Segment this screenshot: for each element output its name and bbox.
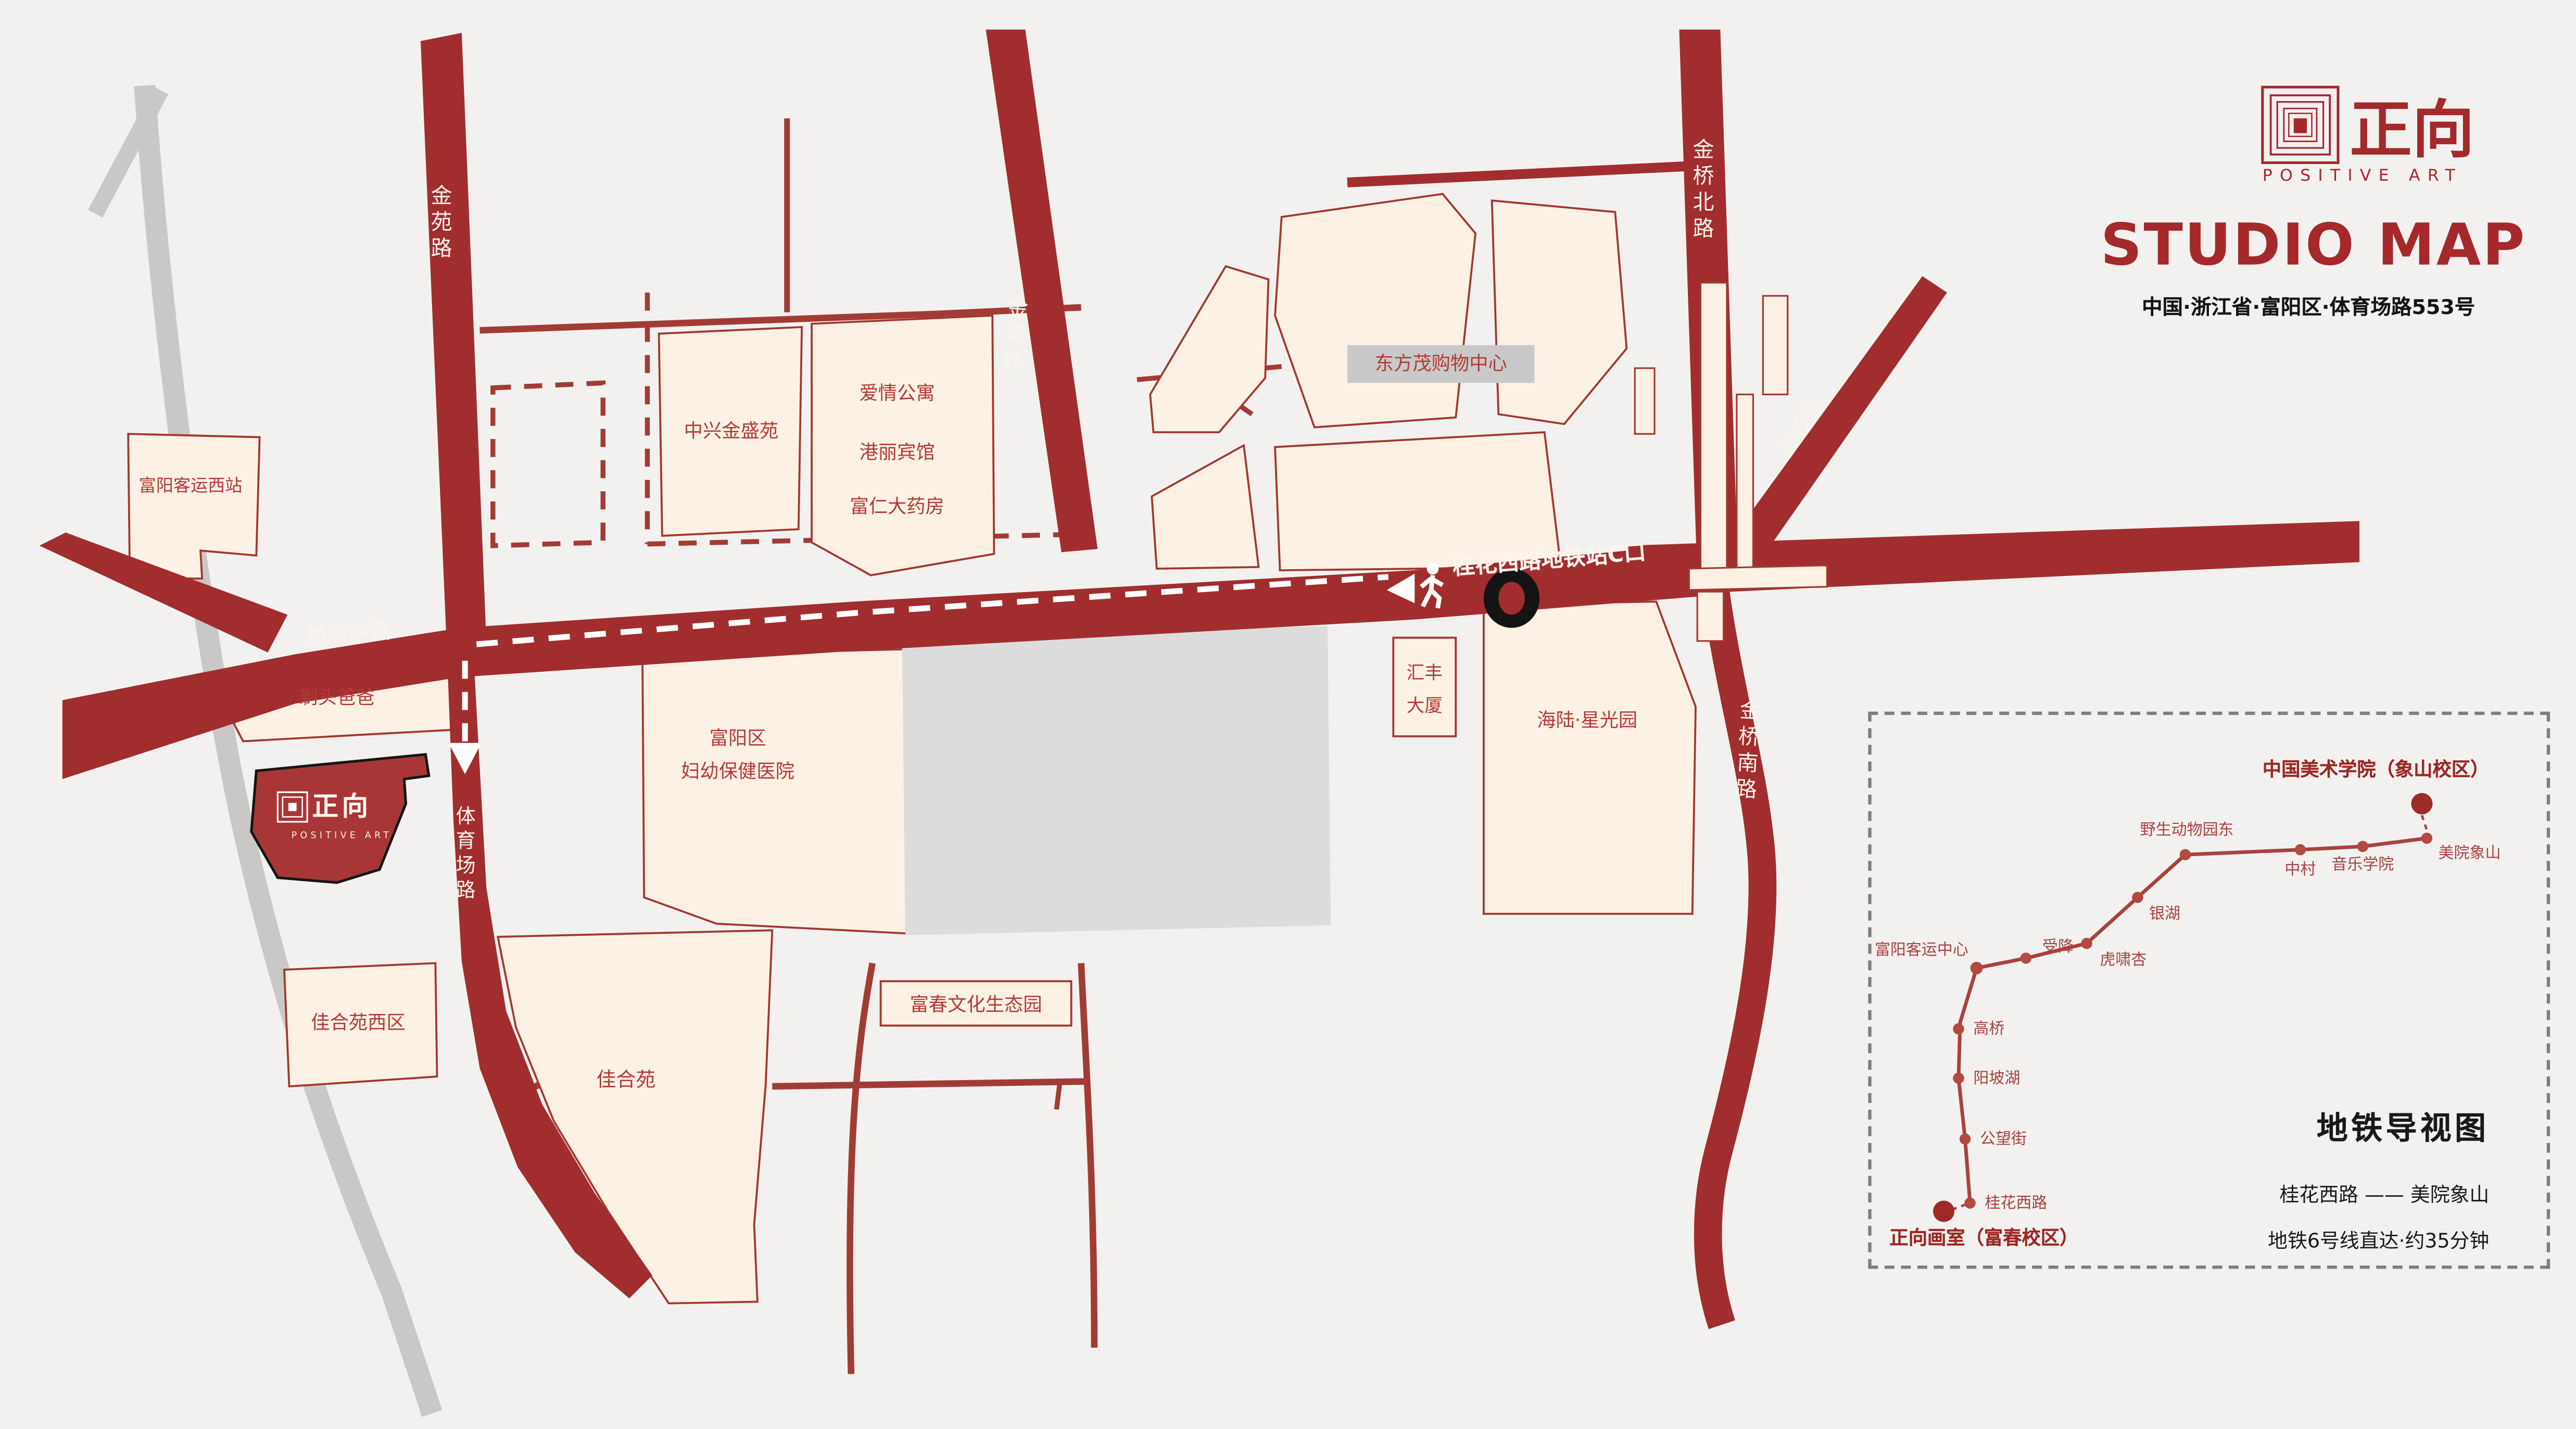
mall-block-3 <box>1492 200 1627 424</box>
metro-panel-title: 地铁导视图 <box>2185 1111 2489 1150</box>
road-jinpu-shape <box>986 30 1098 553</box>
station-label-gongwangjie: 公望街 <box>1980 1131 2027 1150</box>
station-label-yinyuexueyuan: 音乐学院 <box>2317 856 2409 875</box>
metro-note-text: 地铁6号线直达·约35分钟 <box>2136 1230 2490 1254</box>
gray-block <box>902 626 1331 935</box>
studio-logo-en: POSITIVE ART <box>273 832 411 843</box>
building-hospital-shape <box>642 649 908 934</box>
station-label-guihuaxilu: 桂花西路 <box>1985 1195 2047 1214</box>
station-label-zhongcun: 中村 <box>2272 861 2328 881</box>
station-label-gaoqiao: 高桥 <box>1973 1021 2004 1040</box>
station-label-yeshengdongwuyuandong: 野生动物园东 <box>2126 822 2248 841</box>
metro-campus-label: 中国美术学院（象山校区） <box>2202 758 2489 781</box>
road-label-tiyuchang: 体育场路 <box>452 805 476 945</box>
page-title: STUDIO MAP <box>2100 214 2527 279</box>
road-label-jinyuan: 金苑路 <box>424 184 450 373</box>
building-west-bus-station-shape <box>128 434 259 579</box>
brand-logo-en: POSITIVE ART <box>2263 168 2522 188</box>
station-label-huxiaoxing: 虎啸杏 <box>2100 951 2146 971</box>
station-label-fuyangkeyunzhongxin: 富阳客运中心 <box>1850 942 1968 961</box>
building-label-titou: 剃头爸爸 <box>270 685 405 709</box>
building-hailu-shape <box>1484 601 1696 914</box>
building-label-dongfangmao: 东方茂购物中心 <box>1347 345 1535 383</box>
studio-logo-icon <box>277 792 307 822</box>
metro-route-text: 桂花西路 —— 美院象山 <box>2136 1183 2490 1208</box>
studio-address: 中国·浙江省·富阳区·体育场路553号 <box>2090 294 2527 320</box>
studio-map-poster: 正向 POSITIVE ART STUDIO MAP 中国·浙江省·富阳区·体育… <box>0 0 2576 1428</box>
building-label-furen: 富仁大药房 <box>813 495 981 518</box>
road-north-connector-shape <box>1347 166 1693 183</box>
mall-block-1 <box>1150 266 1268 432</box>
metro-studio-label: 正向画室（富春校区） <box>1889 1226 2169 1249</box>
building-label-gangli: 港丽宾馆 <box>822 441 973 464</box>
road-sunquan-shape <box>1722 276 1947 575</box>
building-label-aiqing: 爱情公寓 <box>822 381 973 405</box>
building-label-jiaheyuan-west: 佳合苑西区 <box>273 1011 444 1034</box>
station-label-meiyuanxiangshan: 美院象山 <box>2439 845 2501 864</box>
building-label-huifeng: 汇丰 大厦 <box>1388 657 1461 722</box>
building-label-jiaheyuan: 佳合苑 <box>560 1068 691 1093</box>
building-label-fuchun-park: 富春文化生态园 <box>881 993 1071 1016</box>
station-label-yinhu: 银湖 <box>2149 906 2180 925</box>
building-label-hospital: 富阳区 妇幼保健医院 <box>639 723 837 787</box>
station-label-yangpohu: 阳坡湖 <box>1973 1070 2020 1089</box>
mall-block-4 <box>1152 445 1258 569</box>
brand-logo-zh: 正向 <box>2350 79 2474 169</box>
building-label-west-bus-station: 富阳客运西站 <box>130 477 251 498</box>
building-label-zhongxing: 中兴金盛苑 <box>654 419 809 443</box>
station-label-shoujiang: 受降 <box>2042 938 2074 958</box>
studio-logo-zh: 正向 <box>312 791 372 823</box>
brand-logo-icon <box>2263 87 2338 162</box>
mall-block-2 <box>1275 194 1475 427</box>
road-label-jinqiao-north: 金桥北路 <box>1686 138 1712 327</box>
building-label-hailu: 海陆·星光园 <box>1488 708 1686 732</box>
road-jinqiao-south-shape <box>1708 579 1763 1325</box>
